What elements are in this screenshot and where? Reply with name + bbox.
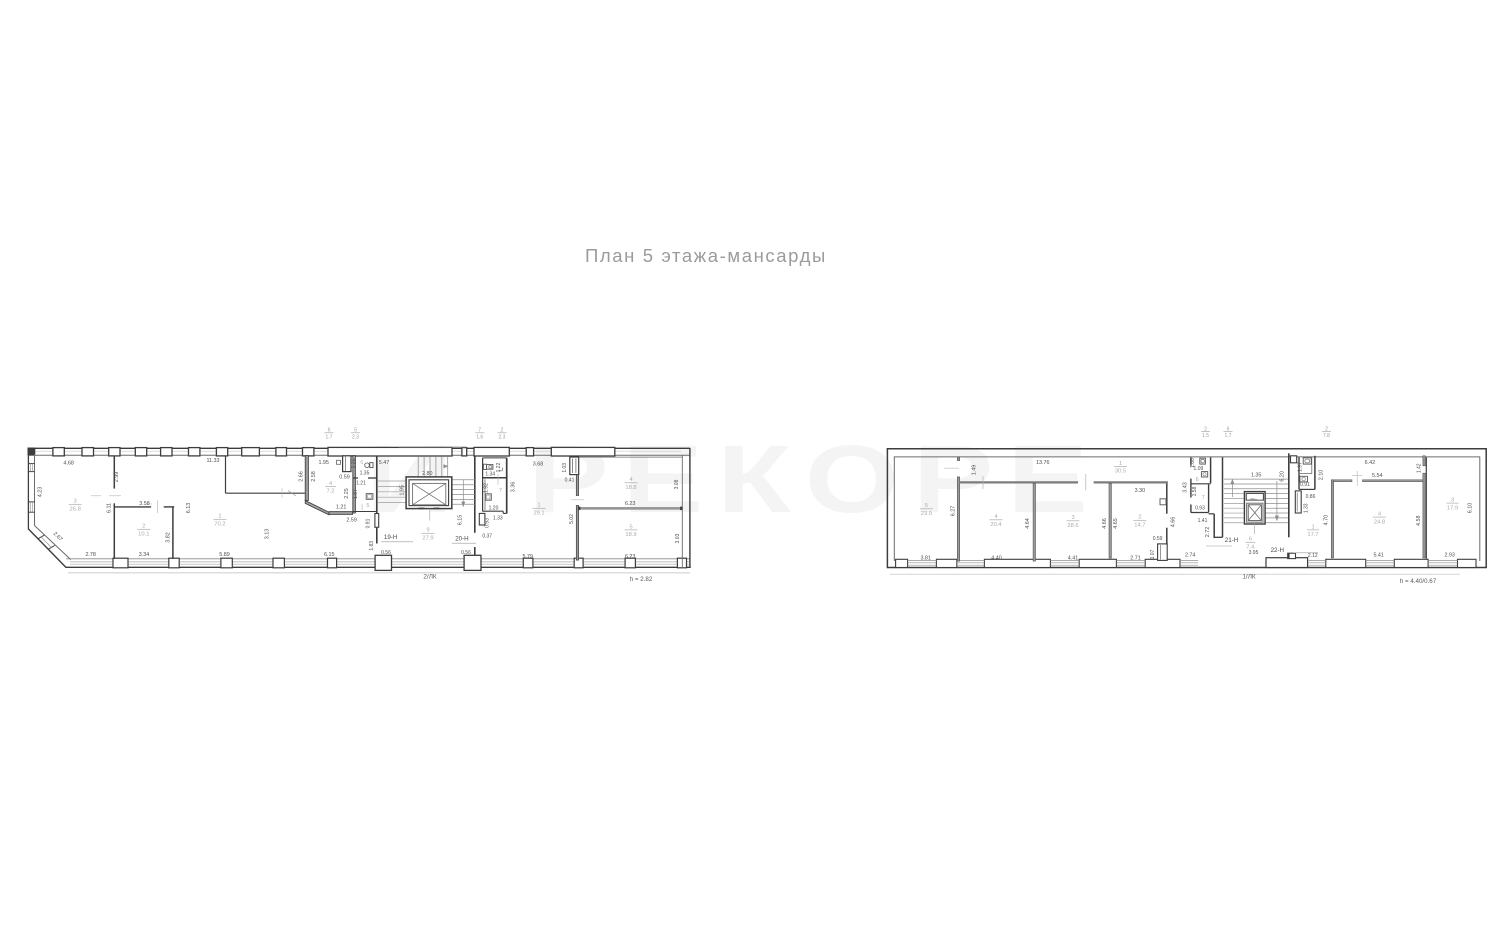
svg-text:1.00: 1.00 — [1190, 458, 1196, 468]
svg-text:17.7: 17.7 — [1307, 532, 1318, 538]
svg-text:0.93: 0.93 — [484, 518, 490, 528]
svg-text:6: 6 — [360, 460, 363, 466]
svg-text:6.13: 6.13 — [186, 503, 192, 514]
svg-text:4: 4 — [994, 514, 997, 520]
svg-text:6.42: 6.42 — [1365, 460, 1376, 466]
svg-text:23.9: 23.9 — [921, 511, 932, 517]
svg-text:2.99: 2.99 — [114, 472, 120, 483]
svg-text:0.91: 0.91 — [366, 518, 372, 528]
svg-text:1.97: 1.97 — [1297, 462, 1303, 472]
svg-text:1.41: 1.41 — [1198, 518, 1208, 524]
svg-text:7.2: 7.2 — [326, 489, 334, 495]
svg-text:3.43: 3.43 — [1183, 482, 1189, 493]
svg-text:2: 2 — [142, 524, 145, 530]
svg-text:5.79: 5.79 — [522, 554, 533, 560]
svg-text:1.03: 1.03 — [562, 463, 568, 473]
svg-text:4: 4 — [629, 477, 632, 483]
svg-text:3.36: 3.36 — [511, 482, 517, 493]
svg-text:5.89: 5.89 — [219, 552, 230, 558]
svg-text:5.47: 5.47 — [379, 460, 390, 466]
svg-text:5.41: 5.41 — [1373, 553, 1384, 559]
svg-text:6.15: 6.15 — [458, 515, 464, 526]
svg-text:1: 1 — [1119, 461, 1122, 467]
svg-text:5.02: 5.02 — [569, 514, 575, 524]
svg-text:4.66: 4.66 — [1102, 518, 1108, 529]
svg-text:4.66: 4.66 — [1171, 517, 1177, 528]
svg-text:11.33: 11.33 — [206, 458, 219, 464]
svg-text:2.74: 2.74 — [1185, 552, 1196, 558]
svg-text:6.27: 6.27 — [950, 506, 956, 517]
svg-text:27.9: 27.9 — [422, 536, 433, 542]
svg-text:2.3: 2.3 — [352, 434, 359, 440]
svg-text:2: 2 — [1138, 515, 1141, 521]
svg-text:6: 6 — [1249, 537, 1252, 543]
svg-text:19-Н: 19-Н — [384, 534, 397, 541]
svg-text:6.23: 6.23 — [625, 554, 636, 560]
svg-text:1.95: 1.95 — [399, 485, 405, 496]
svg-text:1/ЛК: 1/ЛК — [1242, 574, 1256, 581]
svg-text:1: 1 — [218, 514, 221, 520]
svg-text:6.11: 6.11 — [107, 503, 113, 513]
svg-text:1.20: 1.20 — [489, 505, 499, 511]
svg-text:0.56: 0.56 — [381, 550, 391, 556]
svg-text:70.2: 70.2 — [214, 522, 225, 528]
svg-text:4.41: 4.41 — [1068, 555, 1079, 561]
svg-text:h = 2.82: h = 2.82 — [630, 576, 653, 583]
svg-text:2.58: 2.58 — [311, 471, 317, 482]
svg-text:План 5 этажа-мансарды: План 5 этажа-мансарды — [585, 245, 827, 266]
svg-text:2.72: 2.72 — [1205, 527, 1211, 538]
svg-text:22-Н: 22-Н — [1271, 547, 1284, 554]
svg-text:29.1: 29.1 — [533, 511, 544, 517]
svg-text:0.37: 0.37 — [482, 534, 492, 540]
svg-text:2.93: 2.93 — [1444, 553, 1455, 559]
svg-text:5: 5 — [629, 524, 632, 530]
svg-text:1.7: 1.7 — [326, 434, 333, 440]
svg-text:2.3: 2.3 — [499, 434, 506, 440]
svg-text:1.33: 1.33 — [493, 516, 503, 522]
svg-text:0.59: 0.59 — [339, 475, 350, 481]
svg-text:1.21: 1.21 — [336, 505, 347, 511]
svg-text:20.4: 20.4 — [990, 522, 1002, 528]
svg-text:1.35: 1.35 — [1251, 472, 1262, 478]
svg-text:4.58: 4.58 — [1416, 515, 1422, 526]
svg-text:21-Н: 21-Н — [1225, 537, 1238, 544]
svg-text:17.9: 17.9 — [1447, 505, 1458, 511]
svg-text:2.66: 2.66 — [298, 471, 304, 482]
svg-text:1.58: 1.58 — [1192, 486, 1198, 496]
svg-text:1.34: 1.34 — [485, 472, 495, 478]
svg-text:1.83: 1.83 — [369, 541, 375, 551]
svg-text:3: 3 — [1071, 515, 1074, 521]
svg-text:24.8: 24.8 — [1374, 519, 1385, 525]
svg-text:0.93: 0.93 — [1195, 505, 1205, 511]
svg-text:6.15: 6.15 — [324, 552, 335, 558]
svg-text:3.58: 3.58 — [139, 501, 150, 507]
svg-text:1.87: 1.87 — [353, 489, 359, 499]
svg-text:7: 7 — [499, 488, 502, 494]
svg-text:1.92: 1.92 — [483, 483, 489, 493]
svg-text:10.1: 10.1 — [138, 532, 149, 538]
svg-text:26.8: 26.8 — [70, 507, 81, 513]
svg-text:2.10: 2.10 — [1318, 470, 1324, 481]
svg-text:6.23: 6.23 — [625, 501, 636, 507]
svg-text:0.59: 0.59 — [1153, 536, 1163, 542]
svg-text:9: 9 — [426, 528, 429, 534]
svg-text:4.65: 4.65 — [1113, 518, 1119, 529]
svg-text:3.34: 3.34 — [139, 552, 150, 558]
svg-text:6: 6 — [1196, 477, 1199, 483]
svg-text:3.30: 3.30 — [1135, 488, 1146, 494]
svg-text:1: 1 — [1311, 524, 1314, 530]
svg-text:28.6: 28.6 — [1067, 523, 1078, 529]
svg-text:1.7: 1.7 — [1225, 433, 1232, 439]
svg-text:6.20: 6.20 — [1279, 471, 1285, 482]
svg-text:1.07: 1.07 — [1150, 549, 1156, 559]
svg-text:1: 1 — [537, 503, 540, 509]
svg-text:1.5: 1.5 — [1202, 433, 1209, 439]
svg-text:4.68: 4.68 — [63, 460, 74, 466]
svg-text:3: 3 — [1451, 498, 1454, 504]
svg-text:5: 5 — [366, 503, 369, 509]
svg-text:3.13: 3.13 — [265, 529, 271, 540]
svg-text:5.54: 5.54 — [1372, 473, 1383, 479]
svg-text:РЕКОРЕ: РЕКОРЕ — [528, 426, 1102, 533]
svg-text:7.8: 7.8 — [1323, 433, 1330, 439]
svg-text:7: 7 — [1202, 495, 1205, 501]
svg-text:4.23: 4.23 — [38, 487, 44, 498]
svg-text:2/ЛК: 2/ЛК — [423, 574, 437, 581]
svg-text:1.33: 1.33 — [1304, 503, 1310, 513]
svg-text:0.91: 0.91 — [1300, 482, 1310, 488]
svg-text:2.78: 2.78 — [85, 552, 96, 558]
svg-text:3.81: 3.81 — [920, 555, 931, 561]
svg-text:2.80: 2.80 — [422, 471, 433, 477]
svg-text:4.70: 4.70 — [1324, 515, 1330, 526]
svg-text:2.25: 2.25 — [344, 488, 350, 499]
svg-text:1.26: 1.26 — [351, 458, 357, 468]
svg-text:2.71: 2.71 — [1130, 555, 1141, 561]
svg-text:14.7: 14.7 — [1134, 523, 1145, 529]
svg-text:3.95: 3.95 — [1249, 550, 1259, 556]
svg-text:0.41: 0.41 — [565, 478, 575, 484]
svg-text:1.42: 1.42 — [1417, 463, 1423, 473]
svg-text:3.82: 3.82 — [165, 532, 171, 543]
svg-text:3.08: 3.08 — [674, 479, 680, 489]
svg-text:1.21: 1.21 — [356, 480, 366, 486]
svg-text:1.95: 1.95 — [318, 460, 329, 466]
svg-text:1.22: 1.22 — [496, 462, 502, 472]
svg-text:2.12: 2.12 — [1308, 553, 1318, 559]
svg-text:3: 3 — [74, 499, 77, 505]
svg-text:1.35: 1.35 — [360, 471, 370, 477]
svg-text:4.40: 4.40 — [991, 555, 1002, 561]
svg-text:h = 4.40/0.67: h = 4.40/0.67 — [1400, 578, 1437, 585]
svg-text:18.9: 18.9 — [625, 532, 636, 538]
svg-text:20-Н: 20-Н — [455, 536, 468, 543]
svg-text:4: 4 — [329, 481, 332, 487]
svg-text:0.86: 0.86 — [1306, 494, 1316, 500]
svg-text:5: 5 — [925, 503, 928, 509]
svg-text:1.49: 1.49 — [972, 465, 978, 476]
svg-text:30.5: 30.5 — [1115, 469, 1126, 475]
svg-text:13.76: 13.76 — [1036, 460, 1050, 466]
svg-text:18.8: 18.8 — [625, 485, 636, 491]
svg-text:3.68: 3.68 — [533, 461, 544, 467]
svg-text:3.03: 3.03 — [675, 533, 681, 543]
svg-text:6.10: 6.10 — [1468, 503, 1474, 514]
svg-text:2.59: 2.59 — [346, 517, 357, 523]
svg-text:1.6: 1.6 — [476, 434, 483, 440]
svg-text:4.64: 4.64 — [1025, 518, 1031, 529]
svg-text:0.56: 0.56 — [461, 550, 471, 556]
svg-text:4: 4 — [1378, 512, 1381, 518]
